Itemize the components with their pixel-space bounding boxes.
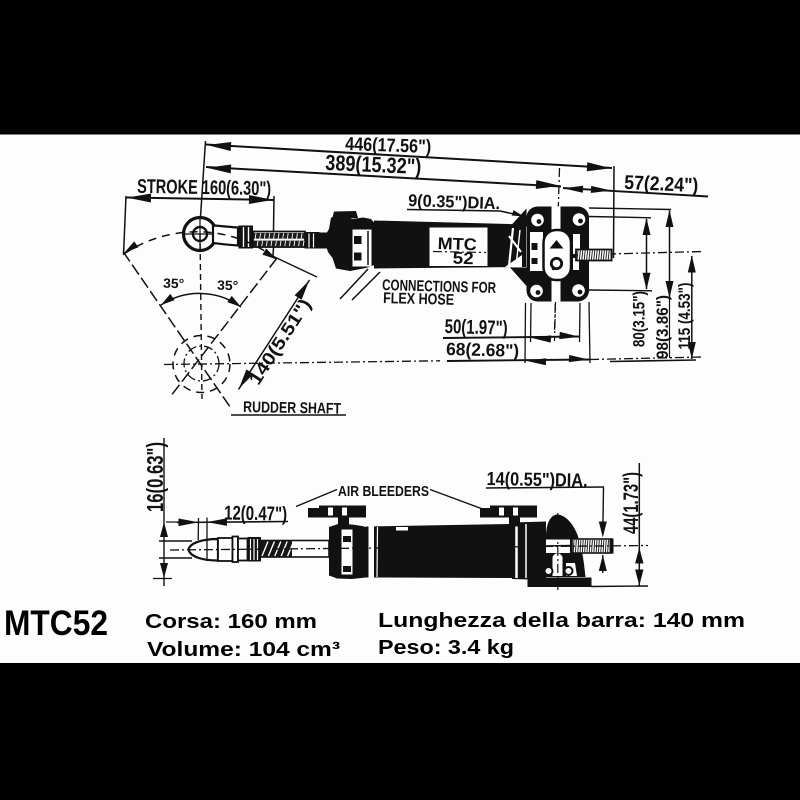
- svg-text:80(3.15"): 80(3.15"): [630, 291, 649, 347]
- svg-text:389(15.32"): 389(15.32"): [325, 150, 422, 179]
- svg-text:44(1.73"): 44(1.73"): [620, 472, 643, 534]
- svg-text:50(1.97"): 50(1.97"): [444, 316, 508, 340]
- svg-text:Volume: 104 cm³: Volume: 104 cm³: [147, 639, 340, 661]
- svg-text:35°: 35°: [163, 276, 185, 292]
- svg-text:MTC52: MTC52: [4, 604, 108, 643]
- svg-text:115 (4.53"): 115 (4.53"): [675, 283, 694, 350]
- svg-text:FLEX HOSE: FLEX HOSE: [383, 290, 454, 309]
- svg-text:Peso: 3.4 kg: Peso: 3.4 kg: [378, 637, 514, 659]
- svg-text:Corsa: 160 mm: Corsa: 160 mm: [145, 611, 317, 633]
- svg-text:98(3.86"): 98(3.86"): [653, 295, 672, 359]
- svg-text:AIR BLEEDERS: AIR BLEEDERS: [338, 483, 429, 500]
- svg-text:Lunghezza della barra: 140 mm: Lunghezza della barra: 140 mm: [378, 610, 745, 632]
- svg-text:68(2.68"): 68(2.68"): [446, 339, 520, 361]
- svg-text:35°: 35°: [217, 278, 239, 294]
